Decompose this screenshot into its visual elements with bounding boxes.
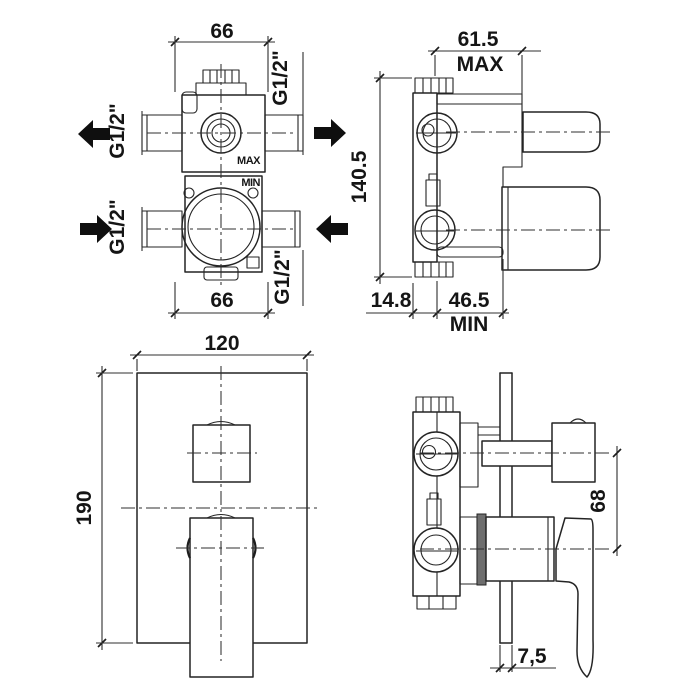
lower-front-block (460, 517, 477, 584)
screw-right (248, 188, 258, 198)
front-view-rough-valve: 66 MAX MIN (78, 20, 348, 319)
lever-handle-side (556, 518, 593, 677)
dim-width-bottom: 66 (210, 289, 233, 312)
front-view-trim-plate: 120 190 (73, 332, 321, 677)
port-label-top-right: G1/2" (269, 50, 292, 105)
clamp-top (415, 78, 453, 93)
side-view-rough-valve: 61.5 MAX 140.5 14.8 46.5 MIN (348, 28, 612, 336)
diverter-spindle (482, 441, 552, 466)
dim-depth-min-qualifier: MIN (450, 313, 489, 336)
dim-plate-thickness: 7,5 (517, 645, 547, 668)
bracket-arm-min (437, 247, 503, 257)
dim-width-top: 66 (210, 20, 233, 43)
body-label-min: MIN (241, 177, 260, 189)
dim-plate-height: 190 (73, 490, 96, 525)
clamp-bottom-2 (417, 596, 456, 609)
clamp-bottom (415, 262, 453, 277)
dim-back-offset: 14.8 (371, 289, 412, 312)
technical-drawing: 66 MAX MIN (0, 0, 700, 700)
bracket-arm-max (437, 94, 522, 104)
drawing-svg: 66 MAX MIN (0, 0, 700, 700)
dim-depth-max-qualifier: MAX (457, 53, 504, 76)
diverter-stem (426, 180, 440, 206)
side-view-trim-assembly: 68 7,5 (413, 373, 621, 677)
dim-plate-width: 120 (204, 332, 239, 355)
body-label-max: MAX (237, 155, 261, 167)
dim-depth-max: 61.5 (458, 28, 499, 51)
dim-depth-min: 46.5 (449, 289, 490, 312)
upper-front-block (460, 423, 478, 487)
clamp-top-2 (416, 397, 453, 412)
port-label-bottom-right: G1/2" (271, 249, 294, 304)
cartridge-protection-cylinder (502, 187, 600, 270)
flow-arrow-outlet-right-icon (314, 119, 346, 147)
diverter-stem-2 (427, 499, 441, 525)
dim-handle-spacing: 68 (587, 489, 610, 513)
flow-arrow-inlet-right-icon (316, 215, 348, 243)
dim-height: 140.5 (348, 150, 371, 203)
